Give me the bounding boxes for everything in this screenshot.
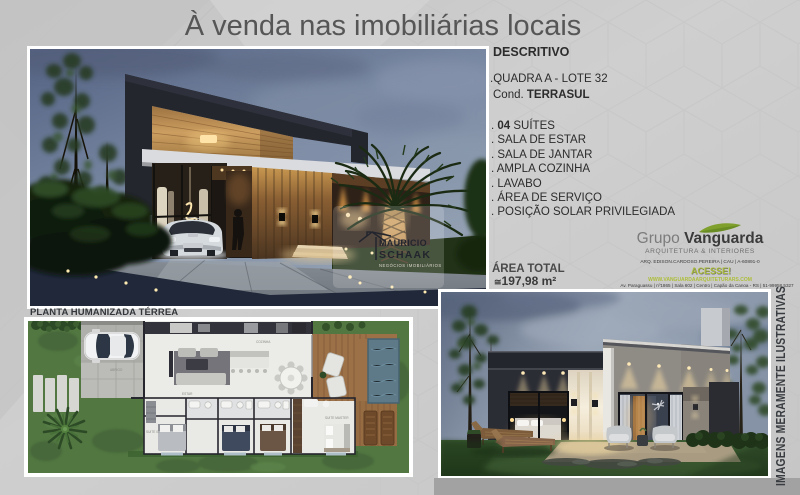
svg-text:NEGÓCIOS IMOBILIÁRIOS: NEGÓCIOS IMOBILIÁRIOS bbox=[379, 263, 442, 268]
svg-text:COZINHA: COZINHA bbox=[256, 340, 271, 344]
svg-text:MAURICIO: MAURICIO bbox=[379, 238, 427, 248]
svg-text:SUITE 01: SUITE 01 bbox=[146, 430, 160, 434]
svg-text:SCHAAK: SCHAAK bbox=[379, 249, 431, 261]
svg-text:ABRIGO: ABRIGO bbox=[110, 368, 123, 372]
svg-text:SUITE MASTER: SUITE MASTER bbox=[325, 416, 349, 420]
svg-text:ESTAR: ESTAR bbox=[182, 392, 193, 396]
